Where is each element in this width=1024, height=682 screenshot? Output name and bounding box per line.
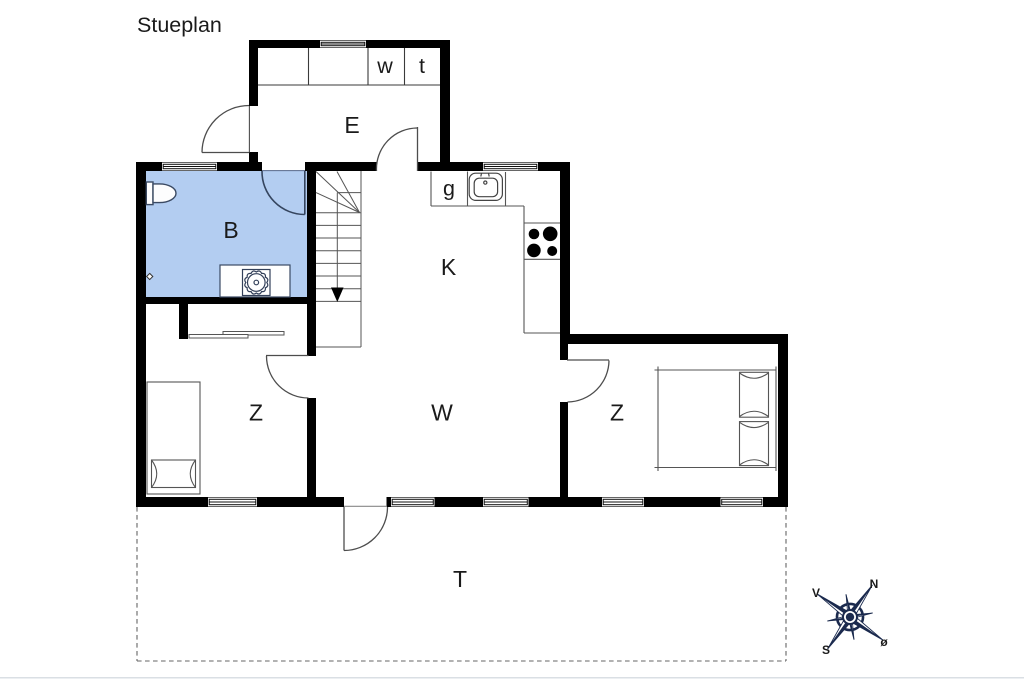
svg-text:t: t — [419, 54, 425, 78]
svg-text:T: T — [453, 566, 467, 592]
svg-text:K: K — [441, 254, 457, 280]
svg-text:S: S — [822, 643, 830, 657]
svg-text:w: w — [376, 54, 393, 78]
svg-text:Stueplan: Stueplan — [137, 13, 222, 37]
svg-text:N: N — [870, 577, 879, 591]
svg-text:ø: ø — [880, 635, 888, 649]
svg-text:W: W — [431, 400, 453, 426]
svg-text:B: B — [223, 217, 238, 243]
svg-text:g: g — [443, 177, 455, 201]
svg-text:E: E — [344, 112, 359, 138]
svg-text:V: V — [812, 586, 820, 600]
svg-text:Z: Z — [610, 400, 624, 426]
svg-text:Z: Z — [249, 400, 263, 426]
